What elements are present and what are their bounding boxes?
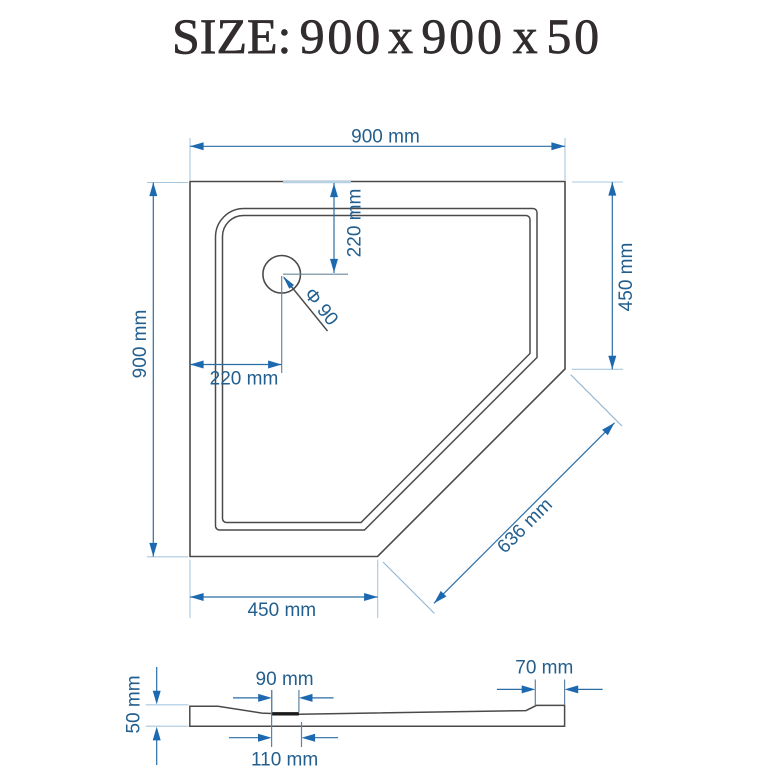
svg-text:50 mm: 50 mm: [124, 675, 145, 733]
svg-text:90 mm: 90 mm: [256, 669, 314, 690]
svg-text:900 mm: 900 mm: [351, 127, 420, 148]
svg-text:450 mm: 450 mm: [247, 600, 316, 621]
svg-text:110 mm: 110 mm: [251, 750, 318, 771]
svg-text:900 mm: 900 mm: [130, 310, 151, 379]
svg-text:450 mm: 450 mm: [616, 243, 637, 312]
svg-text:70 mm: 70 mm: [515, 658, 573, 679]
svg-text:220 mm: 220 mm: [345, 189, 366, 258]
svg-text:220 mm: 220 mm: [210, 369, 279, 390]
